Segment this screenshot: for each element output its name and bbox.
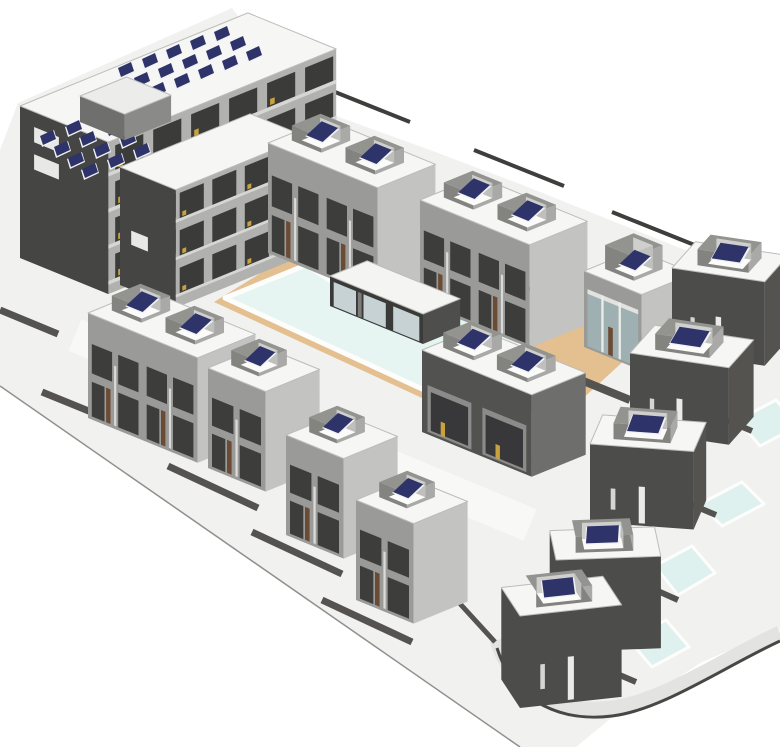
villa-glass-east-facade-detail [619, 302, 621, 360]
villa-west-4-facade-detail [383, 551, 385, 609]
villa-pair-west-facade-detail [92, 382, 105, 422]
site-3d-view [0, 0, 780, 747]
clubhouse-facade-detail [358, 292, 362, 318]
villa-pair-north-2-facade-detail [493, 296, 497, 332]
villa-glass-east-facade-detail [601, 295, 603, 353]
villa-pair-west-facade-detail [114, 366, 116, 427]
villa-glass-east-facade-detail [608, 327, 613, 357]
villa-west-3-facade-detail [290, 501, 303, 539]
villa-pair-north-1-facade-detail [294, 198, 296, 262]
solar-panel-icon [627, 414, 665, 433]
villa-center-pair-facade-detail [496, 444, 500, 460]
solar-panel-icon [542, 577, 575, 597]
villa-west-3-facade-detail [313, 486, 315, 544]
villa-pair-north-2-facade-detail [479, 290, 492, 329]
villa-west-3-facade-detail [305, 507, 310, 542]
villa-pair-west-facade-detail [147, 404, 160, 444]
villa-pair-west-facade-detail [169, 388, 171, 449]
villa-pair-north-1-facade-detail [286, 221, 290, 259]
villa-west-2-facade-detail [235, 419, 237, 477]
villa-east-row-4-facade-detail [540, 664, 545, 689]
villa-west-4-facade-detail [360, 566, 373, 605]
villa-east-row-2-facade-detail [639, 487, 645, 524]
villa-west-2-facade-detail [212, 434, 225, 473]
villa-pair-north-2-facade-detail [501, 274, 503, 334]
villa-west-4-facade-detail [375, 572, 380, 607]
villa-east-row-4-facade-detail [568, 656, 574, 700]
villa-pair-west-facade-detail [161, 410, 165, 447]
model-viewport [0, 0, 780, 747]
villa-pair-north-1-facade-detail [272, 215, 285, 256]
villa-pair-west-facade-detail [106, 388, 110, 424]
villa-east-row-2-facade-detail [611, 488, 616, 509]
solar-panel-icon [586, 525, 619, 543]
villa-west-2-facade-detail [227, 440, 232, 475]
villa-center-pair-facade-detail [441, 422, 445, 438]
